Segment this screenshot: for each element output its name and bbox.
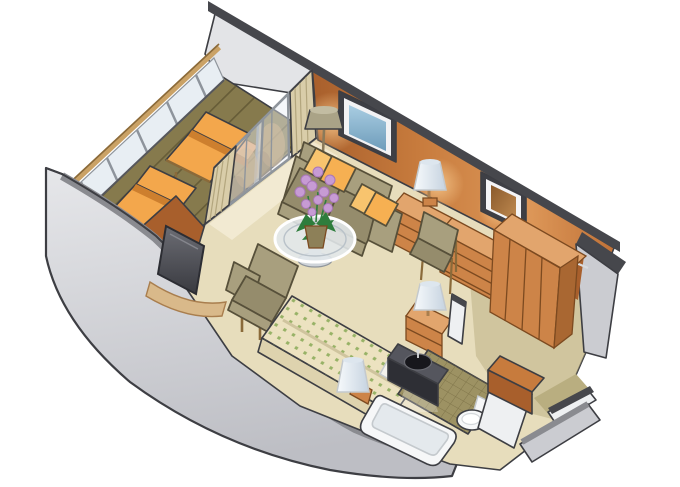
table-lamp-shade xyxy=(414,162,446,190)
stateroom-floorplan-svg xyxy=(0,0,680,487)
bedside-lamp-shade xyxy=(337,360,369,392)
stateroom-illustration xyxy=(0,0,680,487)
nightstand-lamp-shade xyxy=(414,284,446,310)
nightstand-lamp xyxy=(414,281,446,316)
plant-pot xyxy=(305,226,327,248)
